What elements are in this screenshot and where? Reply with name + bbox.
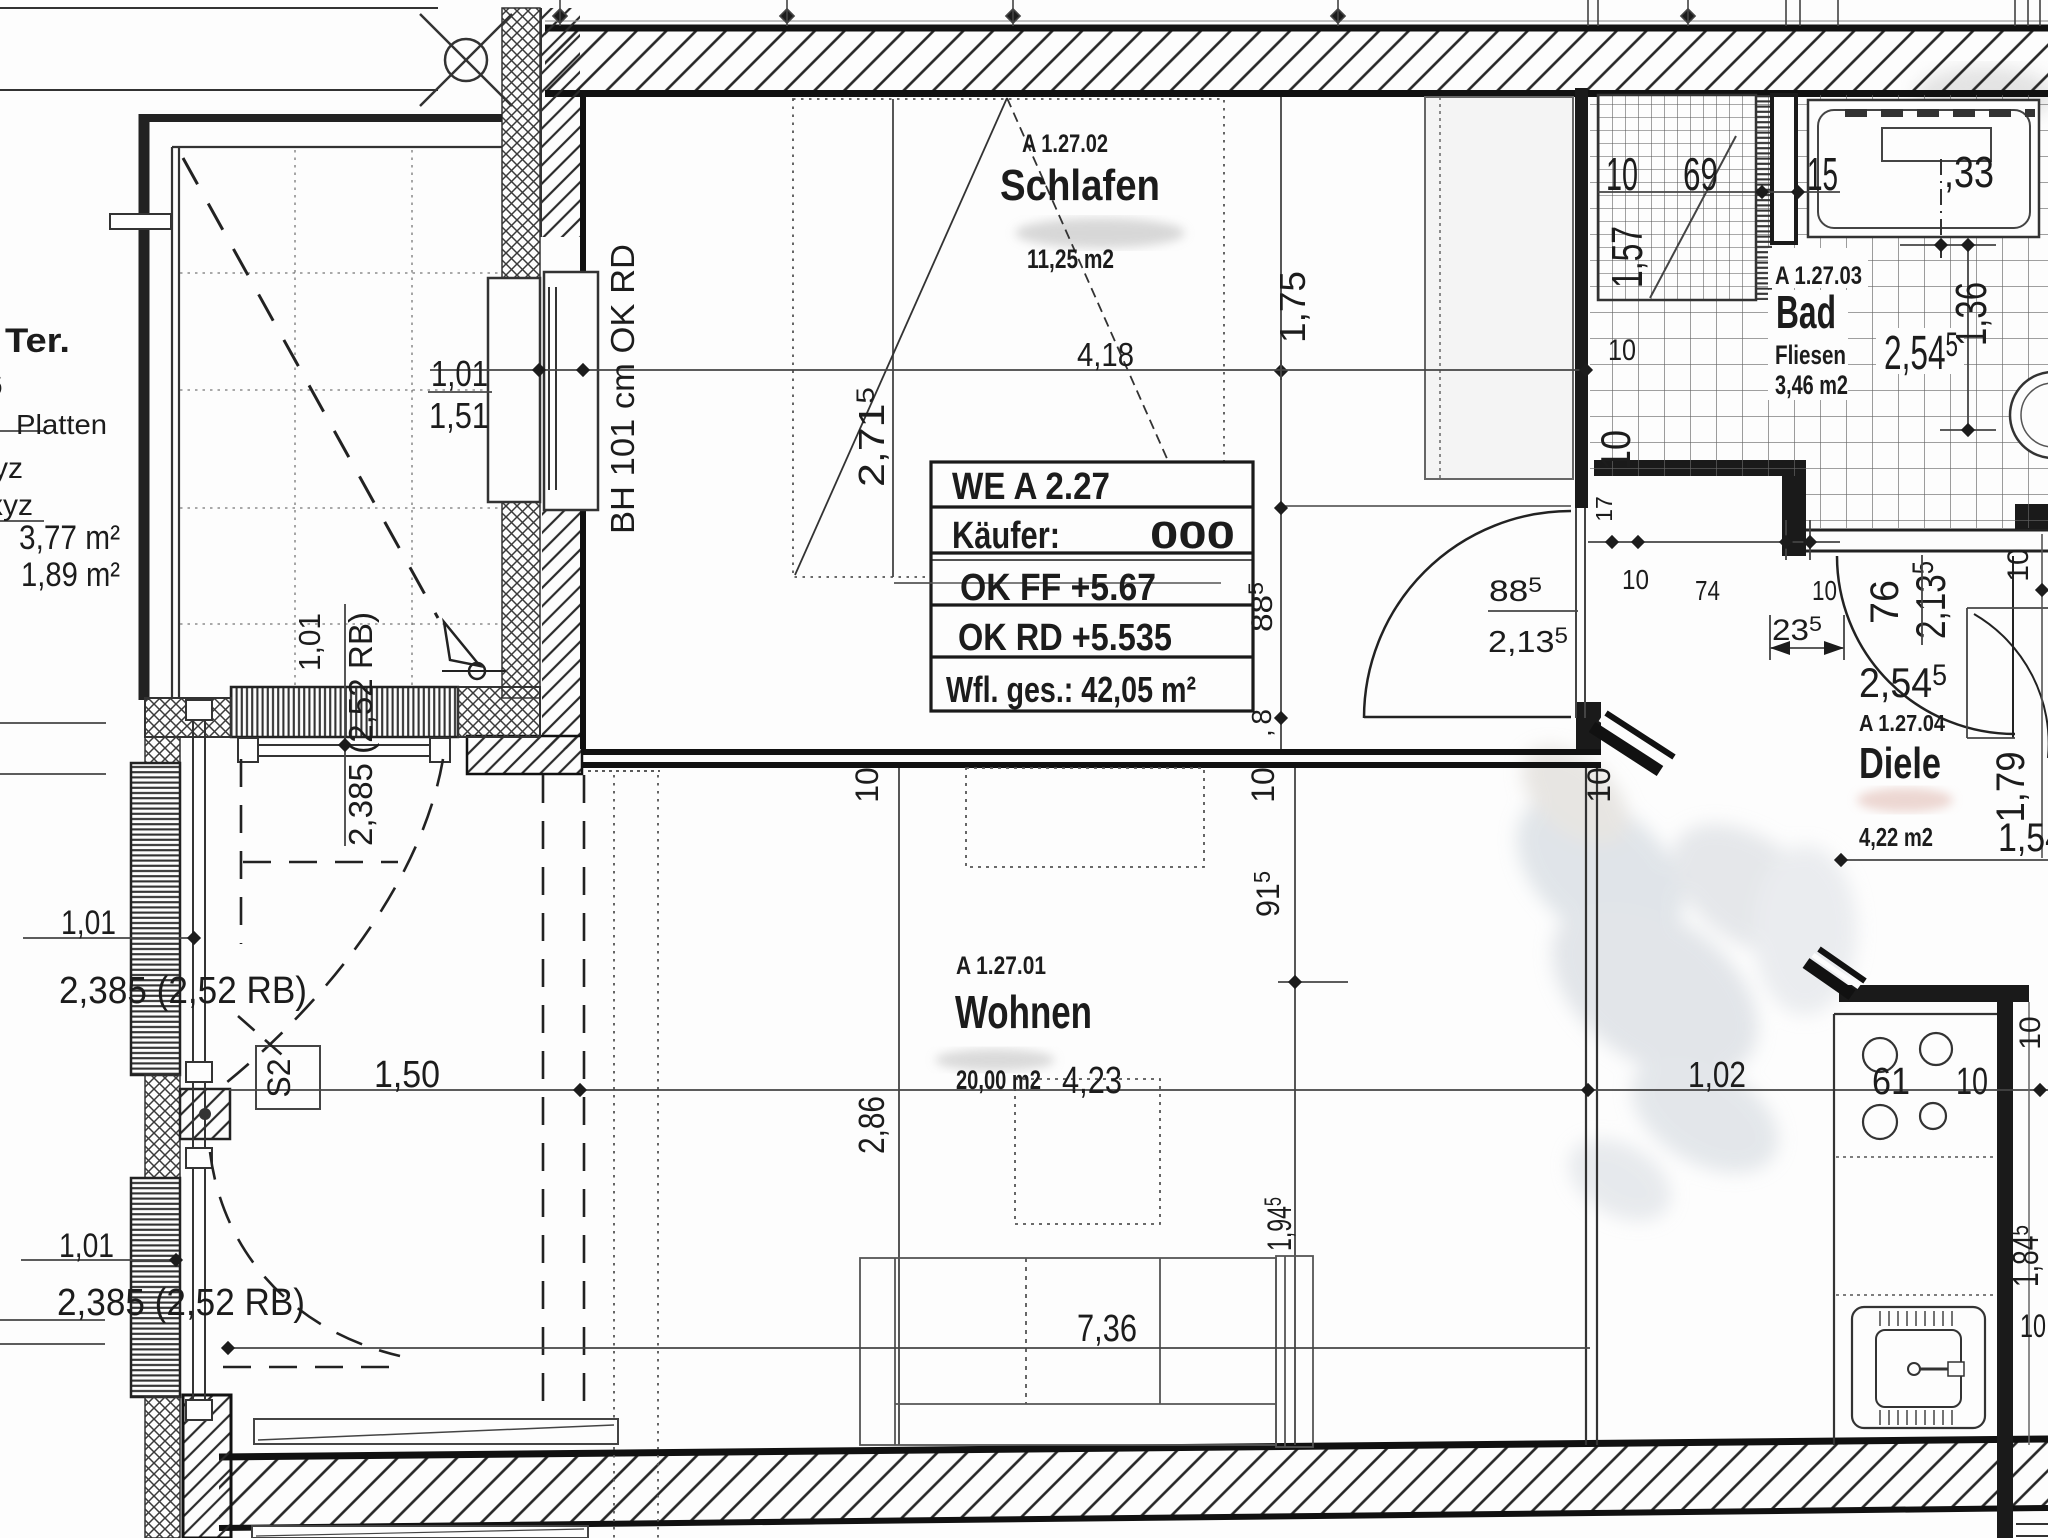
svg-text:1,51: 1,51 <box>429 395 489 436</box>
svg-text:1,01: 1,01 <box>59 1227 114 1265</box>
svg-text:10: 10 <box>1812 575 1837 606</box>
svg-text:1,01: 1,01 <box>431 353 488 394</box>
svg-text:10: 10 <box>1581 767 1617 803</box>
svg-text:1,01: 1,01 <box>292 613 327 671</box>
svg-text:1,02: 1,02 <box>1688 1054 1746 1095</box>
svg-text:OK RD +5.535: OK RD +5.535 <box>958 617 1172 659</box>
svg-text:4,18: 4,18 <box>1077 336 1134 373</box>
svg-text:2,385 (2,52 RB): 2,385 (2,52 RB) <box>59 970 307 1012</box>
svg-text:xyz: xyz <box>0 489 33 522</box>
svg-text:A 1.27.01: A 1.27.01 <box>956 952 1046 980</box>
svg-text:,33: ,33 <box>1944 148 1994 197</box>
svg-text:1,54: 1,54 <box>1998 816 2048 860</box>
svg-text:10: 10 <box>849 767 885 803</box>
svg-text:69: 69 <box>1683 148 1718 200</box>
svg-text:1,36: 1,36 <box>1947 282 1996 346</box>
svg-text:10: 10 <box>1622 564 1649 595</box>
svg-text:7,36: 7,36 <box>1077 1308 1137 1350</box>
svg-text:10: 10 <box>2014 1016 2047 1049</box>
svg-text:2,385 (2,52 RB): 2,385 (2,52 RB) <box>342 612 379 846</box>
svg-text:Wohnen: Wohnen <box>955 986 1092 1038</box>
svg-text:2,385 (2,52 RB): 2,385 (2,52 RB) <box>57 1282 305 1324</box>
svg-text:,8: ,8 <box>1246 709 1277 737</box>
svg-text:S2: S2 <box>261 1058 297 1097</box>
svg-text:1,89 m²: 1,89 m² <box>21 556 120 594</box>
svg-text:10: 10 <box>1956 1061 1988 1103</box>
svg-text:10: 10 <box>1608 334 1636 367</box>
svg-text:xyz: xyz <box>0 452 23 485</box>
svg-text:Fliesen: Fliesen <box>1775 340 1846 370</box>
svg-text:Schlafen: Schlafen <box>1000 161 1160 210</box>
svg-text:1,79: 1,79 <box>1989 752 2033 823</box>
svg-text:76: 76 <box>1863 580 1907 624</box>
svg-text:10: 10 <box>1592 430 1639 470</box>
svg-text:Ter.: Ter. <box>5 322 70 360</box>
svg-text:Käufer:: Käufer: <box>952 515 1060 557</box>
svg-text:1,50: 1,50 <box>374 1054 440 1096</box>
svg-text:11,25 m2: 11,25 m2 <box>1027 244 1114 274</box>
svg-text:1,01: 1,01 <box>61 904 116 942</box>
svg-text:A 1.27.04: A 1.27.04 <box>1859 710 1945 736</box>
svg-text:BH 101 cm OK RD: BH 101 cm OK RD <box>604 244 641 534</box>
svg-text:10: 10 <box>1606 148 1638 200</box>
svg-text:Platten: Platten <box>16 409 107 440</box>
svg-text:A 1.27.02: A 1.27.02 <box>1022 130 1108 158</box>
svg-text:1,57: 1,57 <box>1603 226 1652 288</box>
svg-text:10: 10 <box>2020 1308 2046 1344</box>
svg-text:74: 74 <box>1695 575 1720 606</box>
svg-text:4,22 m2: 4,22 m2 <box>1859 822 1933 852</box>
svg-text:Diele: Diele <box>1859 739 1941 788</box>
svg-text:2,86: 2,86 <box>851 1096 892 1154</box>
svg-text:17: 17 <box>1591 496 1617 522</box>
svg-text:3,77 m²: 3,77 m² <box>19 519 120 557</box>
svg-text:OK FF +5.67: OK FF +5.67 <box>960 567 1156 609</box>
svg-text:Bad: Bad <box>1776 286 1836 338</box>
svg-text:1,75: 1,75 <box>1272 271 1313 343</box>
svg-text:Wfl. ges.: 42,05 m²: Wfl. ges.: 42,05 m² <box>946 669 1196 710</box>
svg-text:000: 000 <box>1150 515 1235 557</box>
svg-text:6: 6 <box>0 369 3 402</box>
svg-text:20,00 m2: 20,00 m2 <box>956 1065 1041 1095</box>
svg-text:15: 15 <box>1807 148 1838 200</box>
svg-text:10: 10 <box>2002 548 2035 581</box>
svg-text:61: 61 <box>1872 1061 1910 1103</box>
svg-text:3,46 m2: 3,46 m2 <box>1775 370 1848 400</box>
svg-text:4,23: 4,23 <box>1062 1060 1122 1102</box>
svg-text:10: 10 <box>1245 767 1281 803</box>
svg-text:WE A 2.27: WE A 2.27 <box>952 466 1110 508</box>
